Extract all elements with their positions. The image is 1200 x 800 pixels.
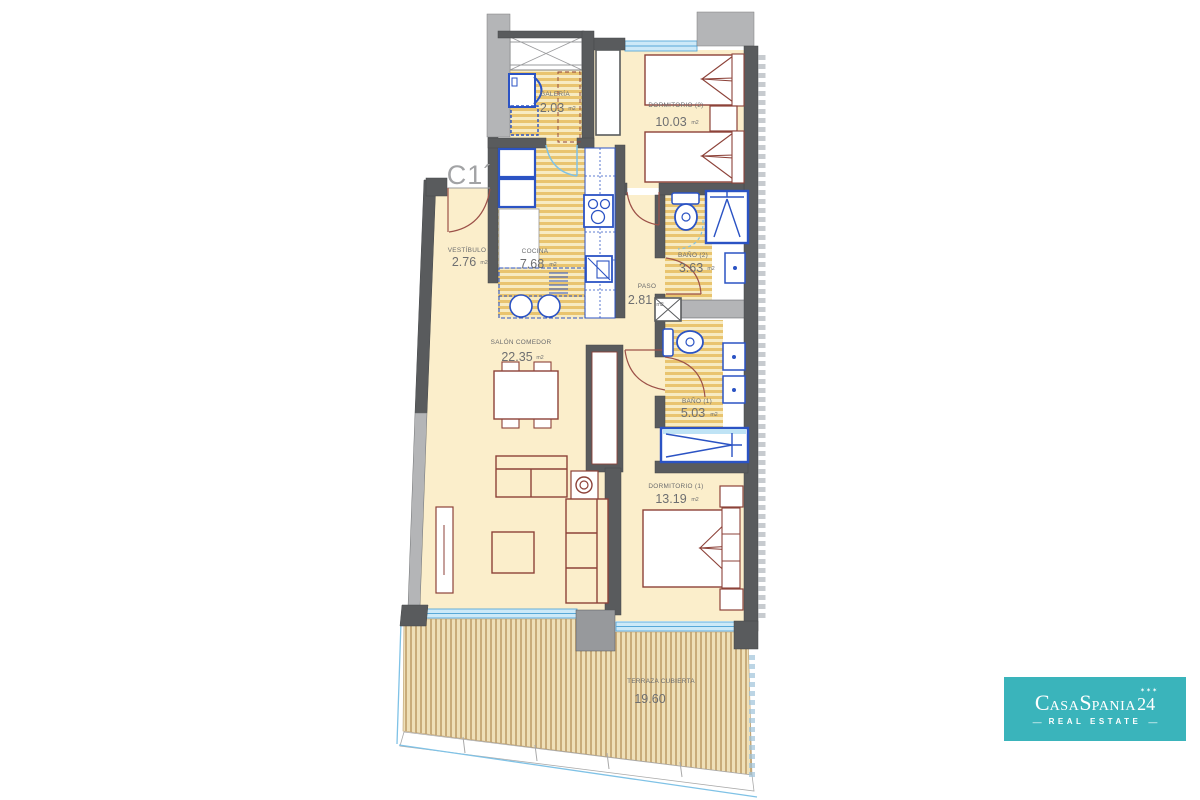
svg-text:m2: m2: [691, 497, 698, 503]
kitchen-sink-symbol: [510, 295, 532, 317]
sink-symbol-bano1-a: [723, 343, 745, 370]
unit-label: C1´: [447, 160, 494, 190]
svg-text:COCINA: COCINA: [522, 248, 549, 255]
sofa-symbol-two-seat: [496, 456, 567, 497]
wall-bano2-left-a: [655, 195, 665, 258]
kitchen-sink-symbol-2: [538, 295, 560, 317]
svg-text:m2: m2: [710, 412, 717, 418]
toilet-symbol-bano1: [663, 329, 703, 356]
svg-text:m2: m2: [656, 302, 663, 308]
svg-text:19.60: 19.60: [634, 692, 665, 706]
bed-symbol-dorm2-a: [645, 54, 744, 106]
floor-bano1-white: [723, 320, 744, 428]
wall-right: [744, 46, 758, 631]
svg-text:DORMITORIO (1): DORMITORIO (1): [648, 483, 703, 490]
stars-icon: ✶✶✶: [1140, 688, 1158, 694]
wall-vestibulo-corner: [426, 178, 447, 196]
wall-dorm2-top: [594, 38, 625, 50]
svg-text:2.03: 2.03: [540, 101, 564, 115]
logo-tagline: — REAL ESTATE —: [1033, 717, 1158, 727]
shower-symbol-bano1: [661, 428, 748, 462]
svg-text:m2: m2: [691, 120, 698, 126]
hob-symbol: [584, 195, 613, 227]
brand-logo: CASASPANIA✶✶✶24 — REAL ESTATE —: [1004, 677, 1186, 741]
wall-corner-bottom-left: [400, 605, 428, 626]
svg-text:7.68: 7.68: [520, 257, 544, 271]
oven-symbol: [586, 256, 612, 282]
svg-text:GALERÍA: GALERÍA: [540, 89, 570, 98]
svg-text:m2: m2: [568, 106, 575, 112]
logo-letter-s: S: [1079, 692, 1091, 714]
sink-symbol-bano1-b: [723, 376, 745, 403]
logo-number-text: 24: [1137, 694, 1155, 714]
svg-text:2.81: 2.81: [628, 293, 652, 307]
svg-text:TERRAZA CUBIERTA: TERRAZA CUBIERTA: [627, 678, 695, 685]
window-dormitorio1: [616, 622, 740, 631]
pillar-terrace: [576, 610, 615, 651]
svg-text:PASO: PASO: [638, 283, 656, 290]
freezer-symbol: [499, 179, 535, 207]
floor-plan-page: C1´ GALERÍA 2.03 m2 DORMITORIO (2) 10.03…: [0, 0, 1200, 800]
logo-letters-asa: ASA: [1050, 700, 1080, 714]
bed-symbol-dorm1: [643, 508, 740, 588]
sink-symbol-bano2: [725, 253, 745, 283]
svg-text:2.76: 2.76: [452, 255, 476, 269]
svg-text:22.35: 22.35: [501, 350, 532, 364]
dining-table-symbol: [494, 362, 558, 428]
wardrobe-dorm2-symbol: [596, 50, 620, 135]
wall-galeria-bottom-b: [577, 138, 594, 148]
nightstand-symbol-dorm2: [710, 106, 737, 131]
wall-bano1-left-b: [655, 396, 665, 428]
svg-text:BAÑO (1): BAÑO (1): [682, 396, 712, 405]
bed-symbol-dorm2-b: [645, 131, 744, 183]
logo-letter-c: C: [1035, 692, 1050, 714]
nightstand-symbol-dorm1-b: [720, 589, 743, 610]
svg-text:BAÑO (2): BAÑO (2): [678, 250, 708, 259]
wall-galeria-right: [582, 31, 594, 148]
side-table-lamp-symbol: [571, 471, 598, 500]
tagline-dash-left: —: [1033, 717, 1042, 727]
wall-shaft-strip-light: [680, 300, 744, 318]
fridge-symbol: [499, 149, 535, 177]
wardrobe-salon-symbol: [592, 352, 617, 464]
svg-text:m2: m2: [536, 355, 543, 361]
svg-text:13.19: 13.19: [655, 492, 686, 506]
window-dormitorio2: [625, 41, 697, 51]
svg-text:m2: m2: [707, 266, 714, 272]
logo-letters-pania: PANIA: [1092, 700, 1137, 714]
window-salon: [424, 609, 577, 618]
toilet-symbol-bano2: [672, 193, 699, 230]
svg-text:DORMITORIO (2): DORMITORIO (2): [648, 102, 703, 109]
svg-text:m2: m2: [549, 262, 556, 268]
wall-cocina-paso: [615, 145, 625, 318]
wall-corner-bottom-right: [734, 621, 758, 649]
pillar-top-right-light: [697, 12, 754, 46]
drying-area-hatch: [510, 37, 582, 70]
sofa-symbol-three-seat: [566, 499, 608, 603]
wall-cocina-left: [488, 135, 498, 283]
coffee-table-symbol: [492, 532, 534, 573]
shower-symbol-bano2: [706, 191, 748, 243]
svg-text:VESTÍBULO: VESTÍBULO: [448, 245, 487, 254]
svg-text:3.63: 3.63: [679, 261, 703, 275]
wall-galeria-bottom-a: [488, 138, 546, 148]
nightstand-symbol-dorm1-a: [720, 486, 743, 507]
tagline-text: REAL ESTATE: [1049, 717, 1142, 726]
svg-text:SALÓN COMEDOR: SALÓN COMEDOR: [491, 337, 552, 346]
tagline-dash-right: —: [1148, 717, 1157, 727]
logo-brand: CASASPANIA✶✶✶24: [1035, 692, 1155, 714]
svg-text:10.03: 10.03: [655, 115, 686, 129]
svg-text:5.03: 5.03: [681, 406, 705, 420]
wall-tendedero-top: [498, 31, 584, 38]
sideboard-symbol: [436, 507, 453, 593]
svg-text:m2: m2: [480, 260, 487, 266]
logo-number: ✶✶✶24: [1137, 695, 1155, 713]
